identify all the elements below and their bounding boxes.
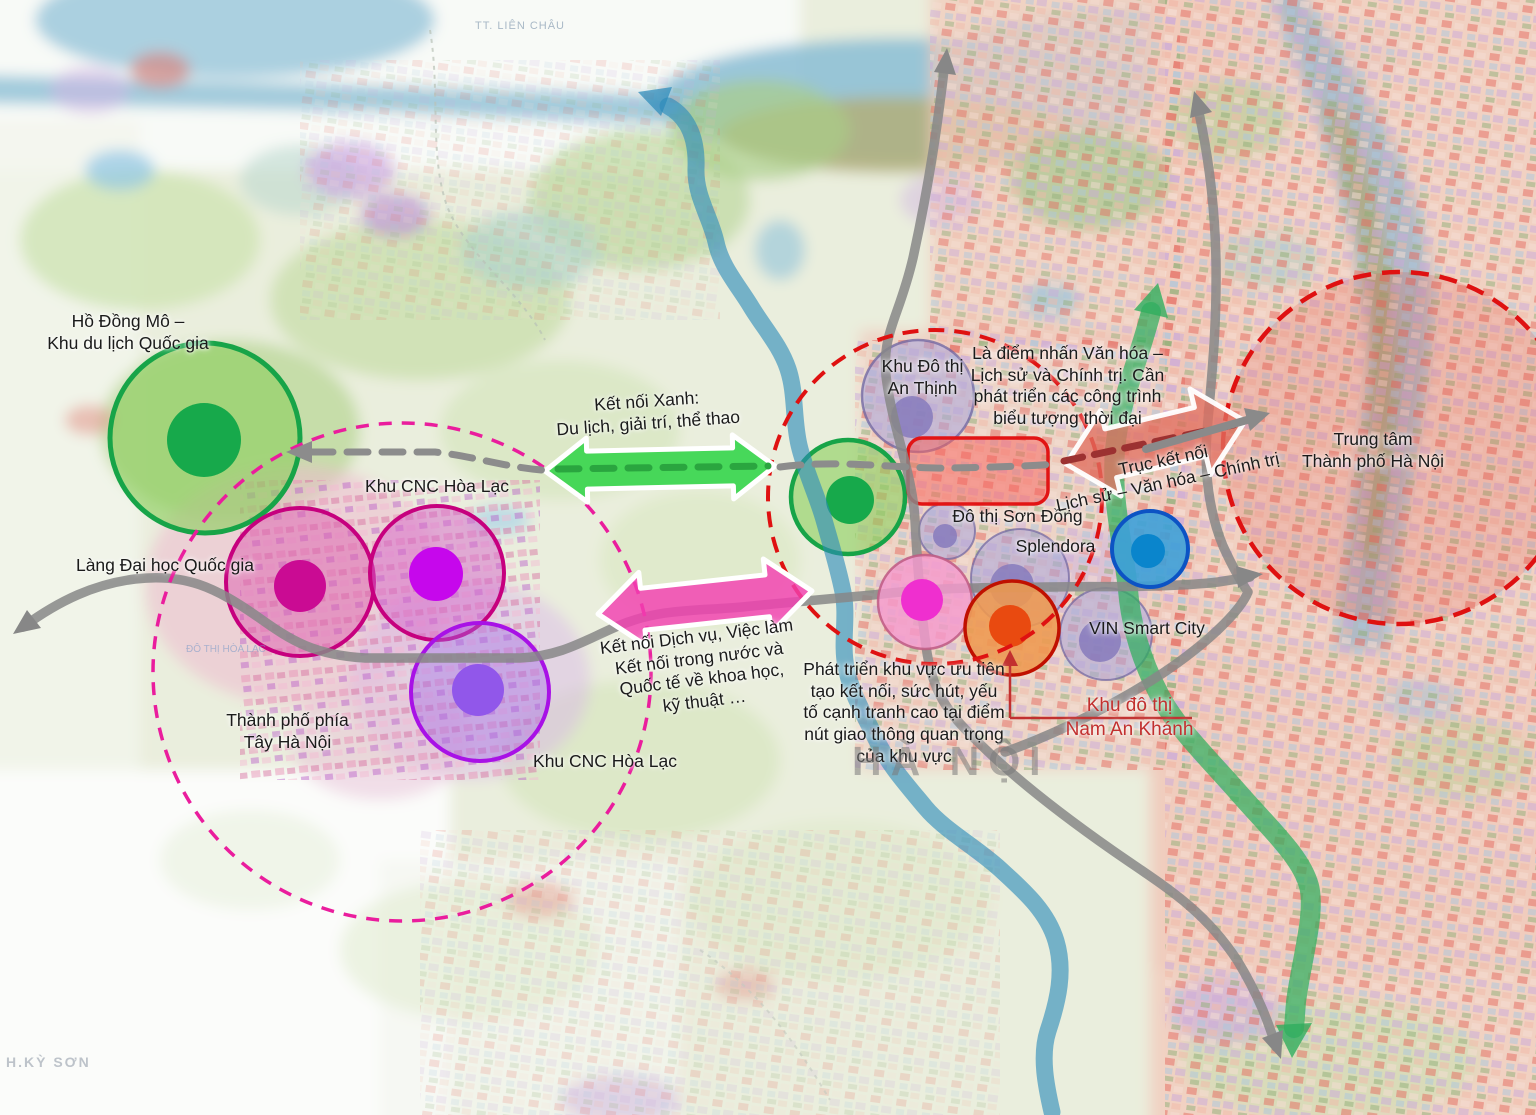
planning-map: TT. LIÊN CHÂU Hồ Đồng Mô – Khu du lịch Q… — [0, 0, 1536, 1115]
label-splendora: Splendora — [1008, 536, 1103, 558]
label-khu-cnc-hoa-lac-north: Khu CNC Hòa Lạc — [352, 476, 522, 498]
map-label-h-ky-son: H.KỲ SƠN — [6, 1054, 136, 1071]
zone-cnc-south-core — [452, 664, 504, 716]
label-ho-dong-mo: Hồ Đồng Mô – Khu du lịch Quốc gia — [18, 311, 238, 354]
node-blue-core — [1131, 534, 1165, 568]
label-vin-smart-city: VIN Smart City — [1082, 618, 1212, 640]
label-nam-an-khanh: Khu đô thị Nam An Khánh — [1052, 694, 1207, 741]
label-khu-do-thi-an-thinh: Khu Đô thị An Thịnh — [870, 356, 975, 399]
node-nam-an-khanh-core — [989, 605, 1031, 647]
label-thanh-pho-phia-tay: Thành phố phía Tây Hà Nội — [220, 710, 355, 753]
label-khu-cnc-hoa-lac-south: Khu CNC Hòa Lạc — [520, 751, 690, 773]
zone-ho-dong-mo-core — [167, 403, 241, 477]
label-trung-tam-ha-noi: Trung tâm Thành phố Hà Nội — [1283, 429, 1463, 472]
map-label-tt-lien-chau: TT. LIÊN CHÂU — [460, 20, 580, 34]
zone-cnc-east-core — [409, 547, 463, 601]
zone-cnc-west-core — [274, 560, 326, 612]
label-lang-dai-hoc-quoc-gia: Làng Đại học Quốc gia — [75, 555, 255, 577]
map-label-do-thi-hoa-lac: ĐÔ THỊ HÒA LẠC — [186, 644, 316, 656]
zone-green-hub-core — [826, 476, 874, 524]
node-pink-core — [901, 579, 943, 621]
label-la-diem-nhan: Là điểm nhấn Văn hóa – Lịch sử và Chính … — [965, 343, 1170, 430]
map-label-ha-noi: HÀ NỘI — [852, 736, 1112, 787]
